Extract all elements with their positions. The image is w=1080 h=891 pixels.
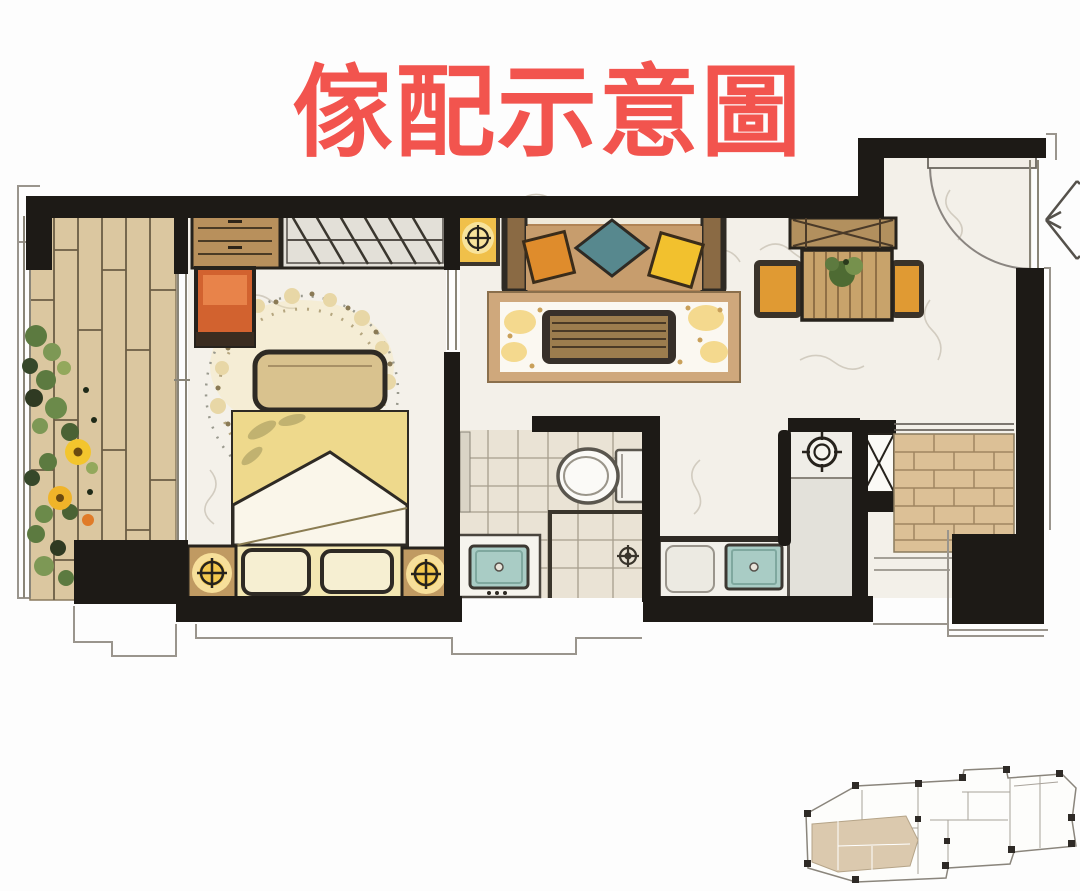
- under-counter-appliance: [666, 546, 714, 592]
- wardrobe: [282, 212, 448, 268]
- key-plan: [804, 766, 1076, 883]
- toilet: [558, 449, 646, 503]
- living-room: [456, 202, 740, 382]
- kitchen-counter-right: [778, 428, 856, 598]
- dining-table: [802, 250, 892, 320]
- side-table: [456, 210, 500, 266]
- kitchen-counter-bottom: [660, 538, 788, 598]
- cushion-orange: [524, 232, 575, 283]
- coffee-table: [542, 310, 676, 364]
- bed-pillow-left: [243, 550, 309, 594]
- bathroom-vanity: [458, 535, 540, 597]
- nightstand-left: [188, 546, 236, 600]
- dresser: [192, 214, 280, 268]
- entrance-arrow-icon: [1046, 181, 1080, 259]
- bed: [233, 412, 407, 598]
- plan-title: 傢配示意圖: [258, 58, 838, 168]
- bath-cabinet-strip: [460, 432, 470, 512]
- door-leaf: [928, 157, 1036, 168]
- orange-cabinet: [196, 268, 254, 346]
- bedroom-door: [448, 270, 456, 350]
- sideboard: [790, 218, 896, 248]
- floor-plan-page: 傢配示意圖: [0, 0, 1080, 891]
- dining-chair-right: [890, 260, 924, 318]
- bed-bench: [255, 352, 385, 410]
- nightstand-right: [402, 548, 450, 600]
- bed-pillow-right: [322, 551, 392, 592]
- dining-chair-left: [754, 260, 802, 318]
- bathroom: [458, 430, 646, 598]
- balcony-rail: [24, 216, 30, 598]
